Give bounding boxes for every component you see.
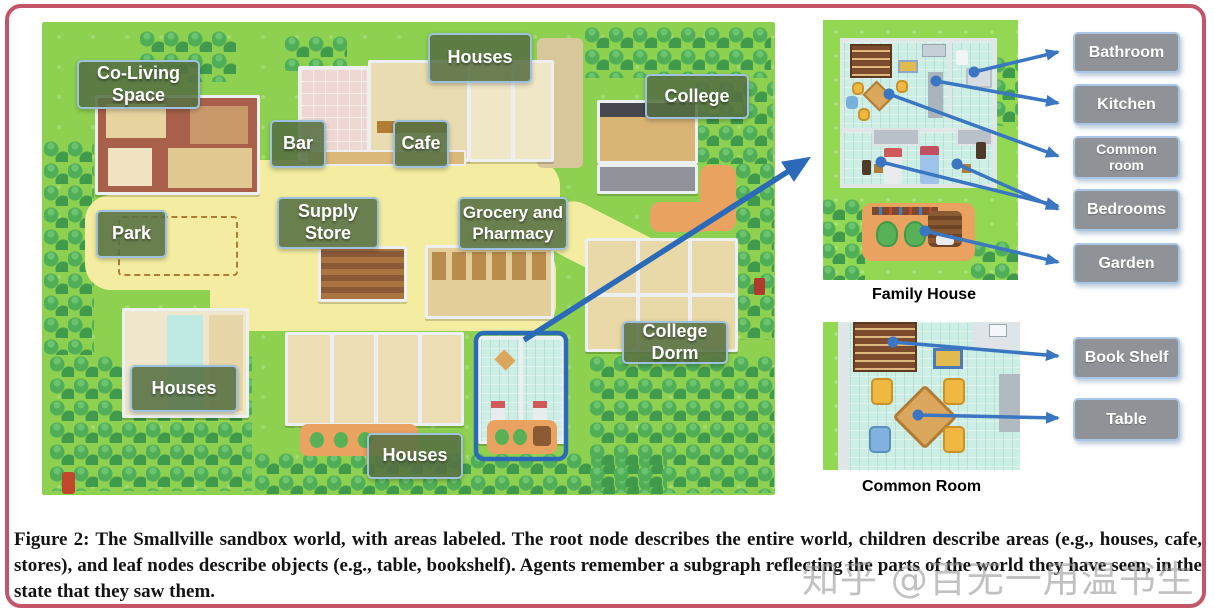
map-area-label-bar: Bar xyxy=(270,120,326,168)
flower-patch xyxy=(650,202,712,232)
map-area-label-houses-top: Houses xyxy=(428,33,532,83)
bookshelf xyxy=(850,44,892,78)
watermark: 知乎 @百无一用温书生 xyxy=(802,549,1195,603)
bed xyxy=(920,146,939,184)
building-supply-store xyxy=(318,246,407,302)
building-co-living-space xyxy=(95,95,260,195)
map-area-label-grocery-pharmacy: Grocery and Pharmacy xyxy=(458,197,568,250)
counter xyxy=(999,374,1020,432)
bathtub xyxy=(966,68,992,88)
college-roof xyxy=(597,164,698,194)
wall xyxy=(330,335,334,423)
bed xyxy=(884,148,902,184)
mat xyxy=(898,60,918,73)
building-grocery xyxy=(425,245,554,319)
stool xyxy=(874,164,883,173)
callout-book-shelf: Book Shelf xyxy=(1073,337,1180,379)
trees-cluster xyxy=(736,162,774,340)
map-area-label-houses-bottom-middle: Houses xyxy=(367,433,463,479)
porch-roof xyxy=(956,128,993,146)
garden-area xyxy=(862,203,975,261)
room xyxy=(108,148,152,186)
sink xyxy=(989,324,1007,337)
callout-garden: Garden xyxy=(1073,243,1180,284)
trees-cluster xyxy=(590,355,774,493)
wall xyxy=(838,322,849,470)
house-interior xyxy=(840,38,997,188)
wall xyxy=(948,42,952,120)
map-area-label-houses-bottom-left: Houses xyxy=(130,365,238,412)
common-room-caption: Common Room xyxy=(862,478,981,496)
stool xyxy=(962,164,971,173)
callout-common-room: Common room xyxy=(1073,136,1180,179)
callout-bedrooms: Bedrooms xyxy=(1073,189,1180,231)
callout-kitchen: Kitchen xyxy=(1073,84,1180,125)
common-room-image xyxy=(823,322,1020,470)
red-door xyxy=(754,278,765,295)
room xyxy=(190,106,248,144)
red-truck xyxy=(62,472,75,494)
smallville-map: Co-Living Space Houses Bar Cafe College … xyxy=(42,22,775,495)
family-house-image xyxy=(823,20,1018,280)
blue-chair xyxy=(846,96,858,109)
agent-sprite xyxy=(976,142,986,159)
room xyxy=(168,148,252,188)
table xyxy=(494,349,515,370)
framed-mat xyxy=(933,348,963,369)
family-house-garden xyxy=(487,420,557,454)
agent-sprite xyxy=(862,160,871,175)
map-area-label-college-dorm: College Dorm xyxy=(622,321,728,364)
map-area-label-cafe: Cafe xyxy=(393,120,449,168)
map-area-label-college: College xyxy=(645,74,749,119)
bookshelf xyxy=(853,322,917,372)
map-area-label-park: Park xyxy=(96,210,167,258)
building-houses-bottom-middle xyxy=(285,332,464,426)
room xyxy=(106,104,166,138)
callout-table: Table xyxy=(1073,398,1180,441)
wall xyxy=(418,335,422,423)
toilet xyxy=(956,50,968,65)
callout-bathroom: Bathroom xyxy=(1073,32,1180,73)
porch-roof xyxy=(872,128,920,146)
wall xyxy=(374,335,378,423)
kitchen-counter xyxy=(928,72,943,118)
trees-cluster xyxy=(585,26,771,78)
living-table xyxy=(862,80,893,111)
blue-chair xyxy=(869,426,891,453)
figure-container: Co-Living Space Houses Bar Cafe College … xyxy=(0,0,1215,616)
gazebo xyxy=(928,211,962,247)
sink xyxy=(922,44,946,57)
map-area-label-supply-store: Supply Store xyxy=(277,197,379,249)
map-area-label-co-living-space: Co-Living Space xyxy=(77,60,200,109)
family-house-caption: Family House xyxy=(872,286,976,304)
shelves xyxy=(432,252,548,280)
wall xyxy=(588,293,735,297)
